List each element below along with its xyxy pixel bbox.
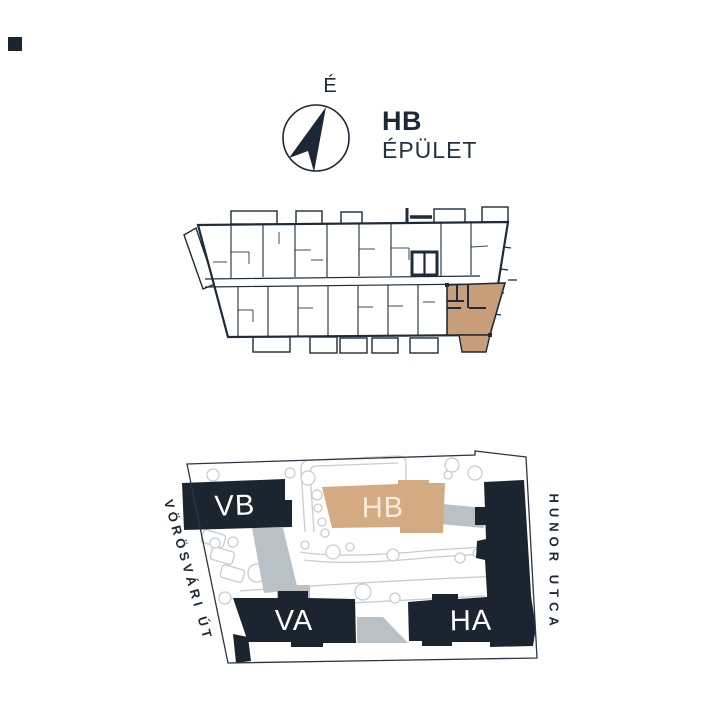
street-label-hunor-utca: HUNOR UTCA bbox=[547, 494, 562, 624]
logo-square bbox=[8, 37, 22, 51]
block-va-label: VA bbox=[275, 605, 314, 637]
site-plan-svg: VB HB VA HA bbox=[180, 448, 565, 673]
block-hb-label: HB bbox=[362, 492, 405, 525]
compass-north-label: É bbox=[312, 75, 348, 98]
compass-icon bbox=[281, 102, 351, 174]
block-vb-label: VB bbox=[214, 489, 256, 522]
building-word-title: ÉPÜLET bbox=[382, 137, 477, 164]
floor-plan-balconies-bottom bbox=[253, 337, 438, 353]
highlighted-unit[interactable] bbox=[445, 283, 505, 352]
floorplan-page: É HB ÉPÜLET bbox=[0, 0, 720, 720]
building-code-title: HB bbox=[382, 106, 422, 137]
highlighted-unit-balcony bbox=[459, 335, 490, 352]
floor-plan-svg bbox=[183, 202, 523, 359]
block-east-strip[interactable] bbox=[475, 480, 532, 611]
block-ha-label: HA bbox=[450, 605, 493, 638]
